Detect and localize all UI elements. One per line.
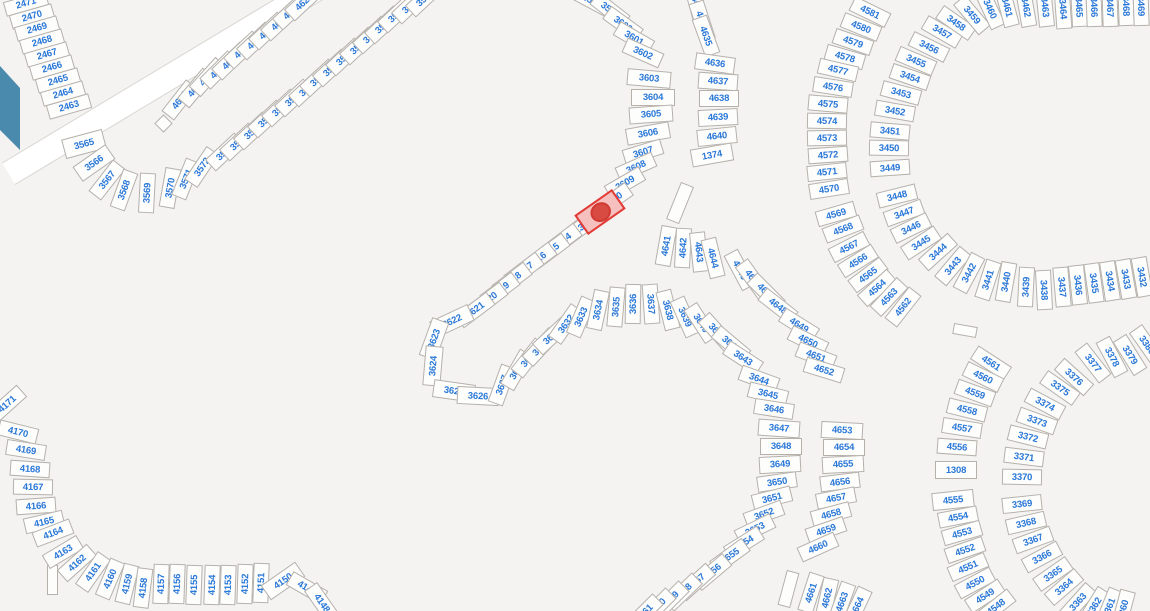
lot-3370[interactable]: 3370: [1002, 469, 1042, 486]
lot-number: 4574: [817, 115, 838, 126]
lot-number: 3360: [1115, 599, 1131, 611]
selected-lot-marker-icon: [586, 198, 614, 226]
lot-number: 4152: [239, 574, 251, 595]
lot-number: 4653: [832, 424, 853, 436]
lot-4171[interactable]: 4171: [0, 385, 27, 424]
lot-number: 4576: [822, 80, 844, 94]
lot-number: 3432: [1135, 266, 1149, 288]
lot-number: 4554: [947, 510, 969, 525]
lot-number: 3649: [770, 458, 791, 470]
lot-4639[interactable]: 4639: [698, 107, 739, 126]
lot-3438[interactable]: 3438: [1035, 270, 1053, 311]
lot-number: 3463: [1038, 0, 1051, 18]
lot-number: 3435: [1087, 272, 1101, 294]
lot-number: 4640: [706, 129, 727, 142]
lot-number: 3636: [627, 294, 638, 315]
lot-number: 4158: [136, 577, 149, 599]
lot-number: 3449: [879, 162, 900, 174]
lot-3467[interactable]: 3467: [1101, 0, 1118, 27]
lot-number: 3454: [899, 68, 922, 85]
lot-number: 4167: [23, 481, 44, 492]
lot-4638[interactable]: 4638: [699, 90, 739, 107]
unlabeled-parcel: [777, 570, 799, 608]
lot-3604[interactable]: 3604: [631, 89, 675, 106]
lot-number: 4573: [817, 132, 838, 143]
lot-number: 3567: [96, 169, 117, 192]
lot-number: 4559: [964, 384, 987, 401]
lot-number: 3438: [1038, 280, 1050, 301]
lot-number: 3466: [1088, 0, 1100, 17]
lot-number: 3371: [1013, 450, 1035, 463]
lot-number: 3433: [1119, 268, 1133, 290]
lot-number: 3569: [141, 183, 153, 204]
lot-3450[interactable]: 3450: [869, 140, 909, 157]
lot-3463[interactable]: 3463: [1035, 0, 1055, 28]
lot-number: 3461: [999, 0, 1015, 18]
lot-3371[interactable]: 3371: [1003, 447, 1045, 468]
lot-number: 3468: [1120, 0, 1132, 16]
unlabeled-parcel: [952, 322, 978, 337]
lot-number: 3434: [1103, 270, 1117, 292]
lot-4167[interactable]: 4167: [13, 479, 53, 496]
lot-number: 1374: [701, 148, 723, 162]
lot-number: 3568: [115, 179, 132, 202]
lot-number: 2463: [58, 98, 81, 114]
lot-number: 4169: [15, 443, 37, 457]
lot-number: 4153: [222, 575, 234, 596]
lot-number: 3440: [999, 271, 1013, 293]
lot-4152[interactable]: 4152: [236, 564, 253, 605]
lot-number: 4568: [832, 220, 855, 238]
lot-4157[interactable]: 4157: [152, 564, 169, 605]
lot-number: 3464: [1057, 0, 1069, 20]
lot-number: 4654: [834, 442, 854, 453]
lot-3647[interactable]: 3647: [757, 418, 800, 438]
lot-number: 3566: [83, 153, 106, 174]
lot-number: 3436: [1071, 274, 1084, 295]
lot-number: 4160: [101, 567, 119, 590]
lot-number: 3372: [1017, 429, 1039, 445]
lot-number: 4570: [818, 182, 840, 196]
lot-number: 3647: [768, 422, 789, 434]
lot-number: 3634: [591, 299, 606, 321]
lot-number: 4638: [709, 93, 729, 104]
lot-3464[interactable]: 3464: [1054, 0, 1073, 30]
lot-number: 3370: [1012, 471, 1033, 482]
lot-3635[interactable]: 3635: [606, 286, 625, 327]
lot-number: 4155: [188, 575, 200, 596]
lot-number: 3437: [1056, 276, 1069, 297]
lot-number: 4642: [677, 238, 689, 259]
lot-number: 3635: [610, 296, 623, 317]
lot-4635[interactable]: 4635: [692, 14, 721, 57]
lot-number: 3588: [414, 0, 436, 9]
lot-number: 3462: [1019, 0, 1033, 18]
lot-number: 3450: [879, 142, 900, 153]
lot-number: 3367: [1022, 531, 1045, 548]
lot-4574[interactable]: 4574: [807, 113, 847, 130]
lot-3569[interactable]: 3569: [138, 173, 156, 214]
lot-number: 3565: [73, 136, 95, 152]
lot-3369[interactable]: 3369: [1001, 494, 1042, 514]
lot-number: 3624: [427, 355, 440, 376]
lot-4654[interactable]: 4654: [823, 439, 865, 456]
lot-number: 3661: [633, 602, 655, 611]
lot-number: 4154: [206, 575, 218, 596]
lot-number: 3369: [1011, 497, 1032, 510]
lot-4154[interactable]: 4154: [203, 565, 220, 606]
lot-4148[interactable]: 4148: [304, 582, 340, 611]
lot-number: 3439: [1020, 277, 1032, 298]
lot-number: 4148: [312, 592, 333, 611]
lot-number: 4171: [0, 393, 18, 415]
lot-number: 3366: [1030, 547, 1053, 566]
lot-3439[interactable]: 3439: [1017, 267, 1035, 308]
lot-number: 3441: [980, 269, 997, 292]
lot-number: 3605: [640, 108, 661, 120]
lot-number: 3377: [1082, 352, 1103, 375]
lot-number: 4557: [951, 421, 973, 435]
lot-4575[interactable]: 4575: [807, 94, 848, 113]
lot-3466[interactable]: 3466: [1085, 0, 1102, 27]
lot-number: 3373: [1026, 412, 1049, 429]
lot-number: 3648: [771, 441, 791, 452]
lot-4644[interactable]: 4644: [700, 237, 725, 280]
lot-4168[interactable]: 4168: [9, 460, 50, 479]
lot-number: 4655: [833, 458, 854, 470]
lot-3603[interactable]: 3603: [626, 68, 671, 89]
lot-number: 3374: [1033, 394, 1056, 413]
lot-number: 4572: [817, 149, 838, 161]
lot-number: 3451: [879, 125, 900, 138]
lot-number: 1308: [946, 465, 966, 476]
lot-number: 4170: [7, 424, 29, 440]
lot-3636[interactable]: 3636: [625, 284, 642, 324]
lot-number: 3603: [638, 72, 659, 85]
lot-number: 3626: [468, 390, 489, 402]
lot-3451[interactable]: 3451: [869, 121, 910, 140]
lot-number: 3448: [886, 188, 908, 204]
lot-number: 4156: [171, 574, 183, 595]
lot-4153[interactable]: 4153: [219, 565, 236, 606]
lot-number: 4555: [942, 493, 963, 506]
lot-number: 4558: [956, 402, 978, 418]
lot-number: 3646: [763, 402, 785, 416]
lot-number: 3606: [637, 126, 659, 140]
lot-number: 4159: [119, 573, 135, 595]
lot-number: 4637: [707, 75, 728, 87]
parcel-map[interactable]: 2471247024692468246724662465246424634612…: [0, 0, 1150, 611]
lot-4158[interactable]: 4158: [133, 567, 154, 609]
lot-4653[interactable]: 4653: [821, 420, 864, 439]
lot-3449[interactable]: 3449: [869, 159, 910, 178]
lot-4156[interactable]: 4156: [168, 564, 185, 605]
lot-number: 3452: [884, 104, 906, 118]
lot-number: 4556: [946, 441, 967, 453]
lot-number: 4660: [806, 538, 829, 556]
lot-number: 3637: [645, 293, 657, 314]
lot-number: 4636: [704, 56, 726, 70]
lot-4637[interactable]: 4637: [697, 71, 738, 91]
lot-number: 3465: [1073, 0, 1085, 17]
lot-4155[interactable]: 4155: [185, 565, 202, 606]
lot-number: 4166: [25, 500, 46, 512]
lot-4556[interactable]: 4556: [936, 438, 977, 457]
lot-number: 3467: [1104, 0, 1116, 17]
lot-3469[interactable]: 3469: [1132, 0, 1149, 26]
lot-number: 4639: [708, 111, 729, 123]
lot-1308[interactable]: 1308: [935, 461, 977, 479]
lot-number: 3453: [890, 85, 912, 101]
lot-4573[interactable]: 4573: [807, 130, 847, 147]
unlabeled-parcel: [666, 182, 694, 224]
lot-number: 3604: [643, 92, 663, 103]
lot-number: 4577: [827, 62, 849, 77]
lot-number: 3469: [1135, 0, 1147, 16]
lot-number: 4168: [19, 463, 40, 475]
lot-number: 3368: [1015, 515, 1037, 530]
lot-number: 4571: [816, 165, 837, 178]
lot-number: 4641: [659, 235, 673, 257]
lot-3648[interactable]: 3648: [760, 438, 802, 455]
lot-number: 4644: [705, 247, 721, 269]
lot-number: 4164: [42, 524, 65, 542]
lot-1374[interactable]: 1374: [690, 142, 734, 167]
lot-number: 4575: [817, 98, 838, 111]
lot-number: 4652: [813, 362, 836, 378]
lot-number: 4157: [155, 574, 167, 595]
lot-3646[interactable]: 3646: [753, 398, 795, 420]
lot-number: 4661: [803, 582, 820, 605]
lot-4169[interactable]: 4169: [5, 439, 47, 461]
lot-4640[interactable]: 4640: [696, 125, 738, 146]
